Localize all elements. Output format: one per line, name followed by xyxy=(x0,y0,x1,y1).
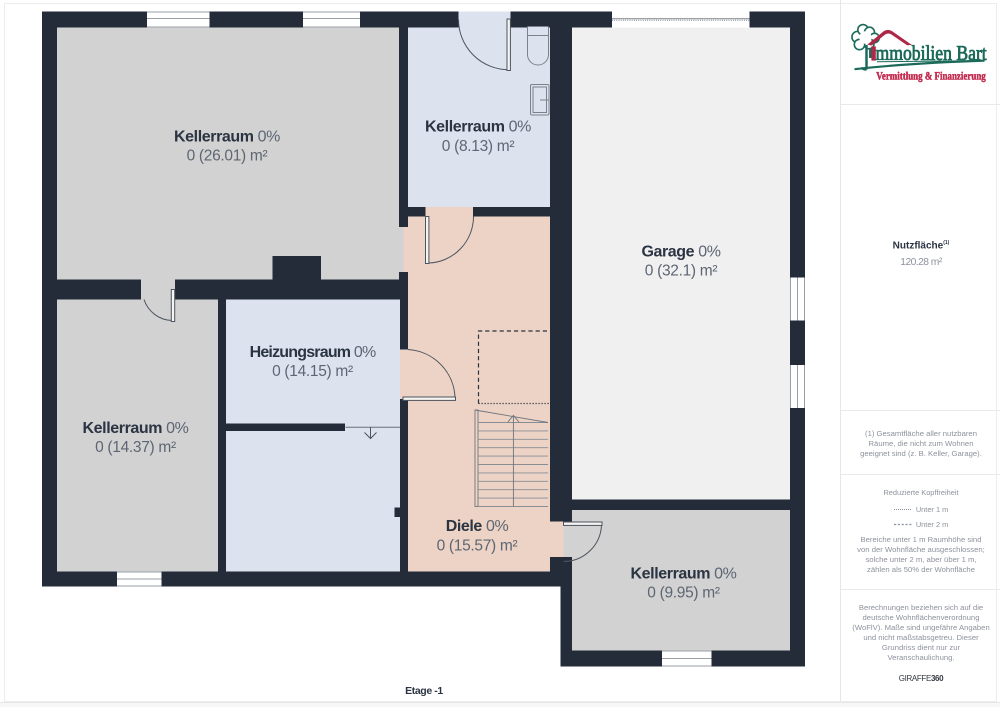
svg-text:Kellerraum 0%: Kellerraum 0% xyxy=(425,119,531,136)
svg-text:0 (26.01) m²: 0 (26.01) m² xyxy=(187,148,268,165)
svg-text:Kellerraum 0%: Kellerraum 0% xyxy=(631,566,737,583)
svg-text:0 (14.37) m²: 0 (14.37) m² xyxy=(95,439,176,456)
svg-text:0 (8.13) m²: 0 (8.13) m² xyxy=(442,138,515,155)
svg-text:0 (9.95) m²: 0 (9.95) m² xyxy=(647,585,720,602)
svg-text:0 (32.1) m²: 0 (32.1) m² xyxy=(645,263,718,280)
svg-text:Kellerraum 0%: Kellerraum 0% xyxy=(83,420,189,437)
svg-text:Etage -1: Etage -1 xyxy=(405,685,443,697)
svg-text:Diele 0%: Diele 0% xyxy=(446,518,509,535)
svg-text:Kellerraum 0%: Kellerraum 0% xyxy=(174,129,280,146)
svg-text:Heizungsraum 0%: Heizungsraum 0% xyxy=(250,344,376,361)
svg-text:0 (14.15) m²: 0 (14.15) m² xyxy=(272,363,353,380)
svg-text:Vermittlung & Finanzierung: Vermittlung & Finanzierung xyxy=(876,70,986,82)
svg-text:0 (15.57) m²: 0 (15.57) m² xyxy=(437,538,518,555)
svg-text:Garage 0%: Garage 0% xyxy=(641,244,720,261)
